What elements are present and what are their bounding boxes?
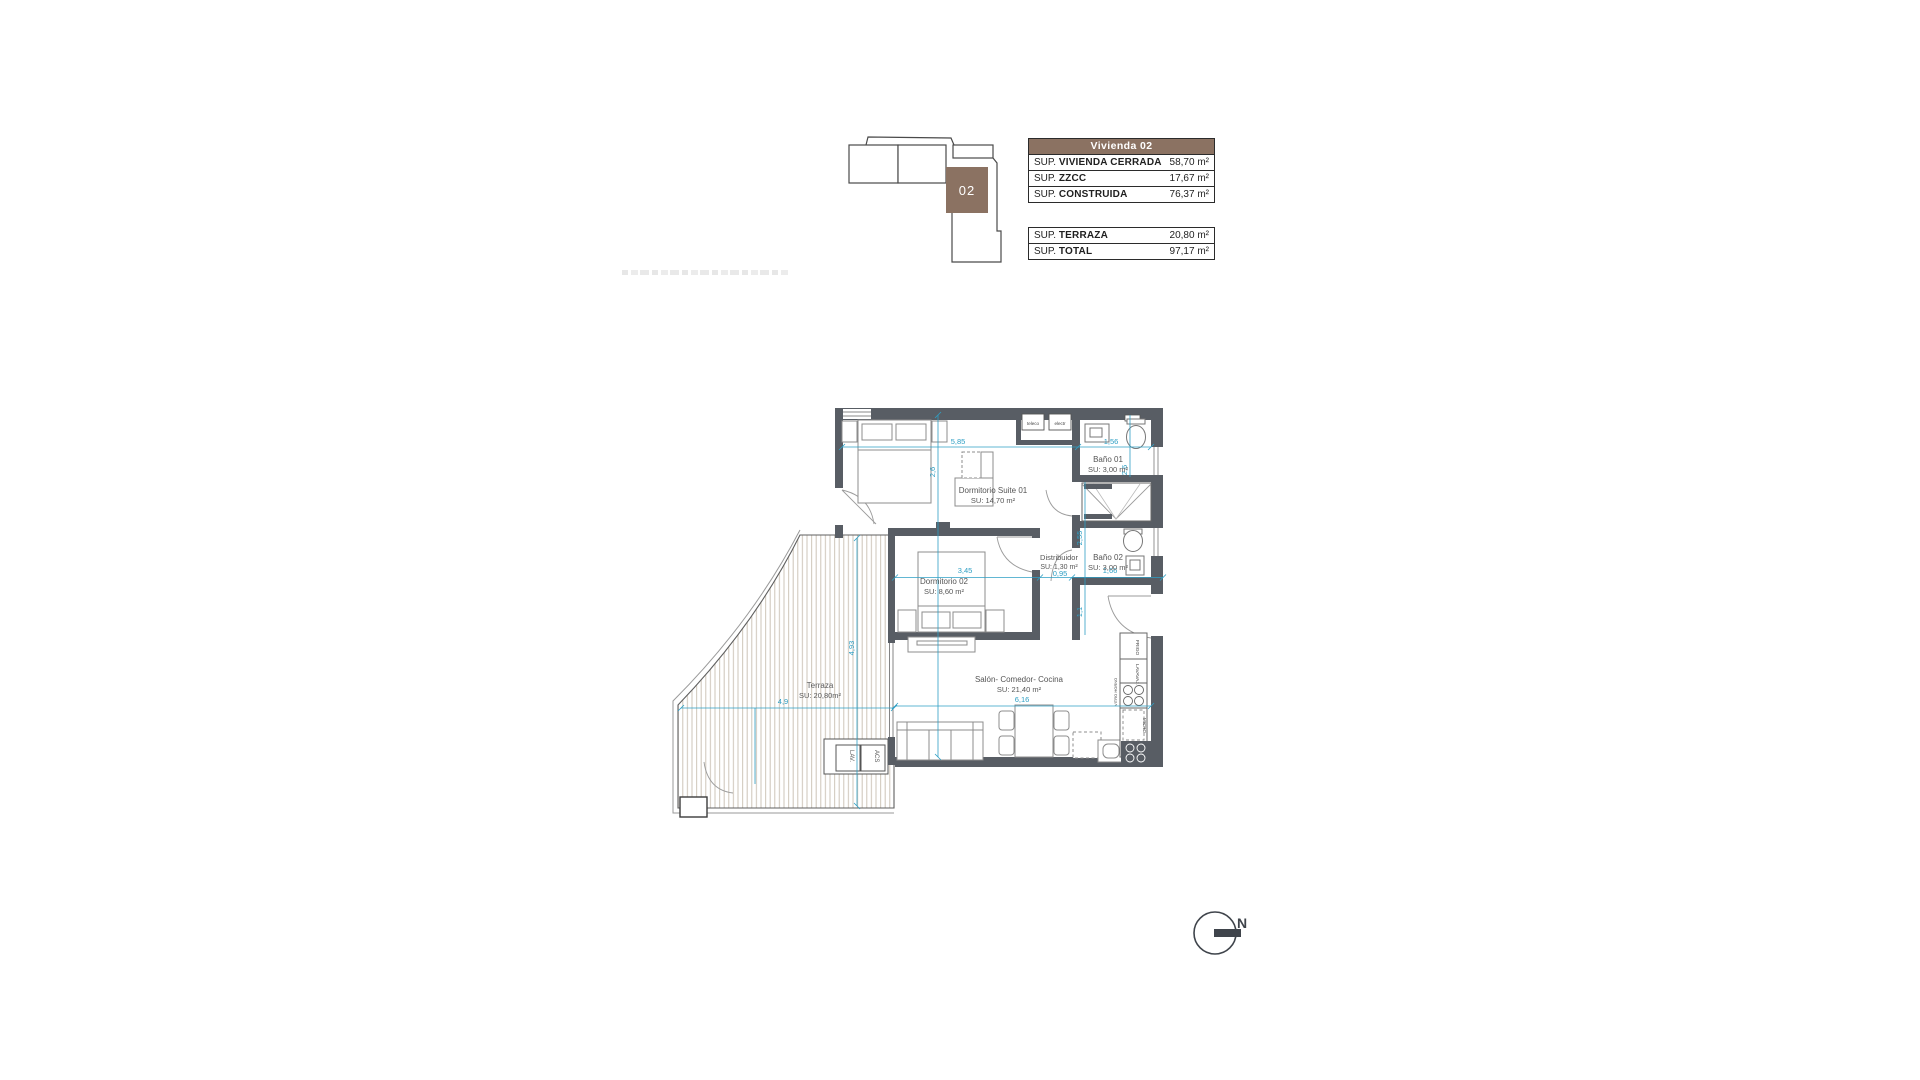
acs-label: ACS bbox=[873, 750, 879, 762]
suite-area: SU: 14,70 m² bbox=[971, 496, 1016, 505]
frigo-label: FRIGO bbox=[1134, 640, 1140, 655]
electr-label: electr bbox=[1054, 421, 1066, 426]
chair bbox=[1054, 711, 1069, 730]
bano1-area: SU: 3,00 m² bbox=[1088, 465, 1129, 474]
salon-area: SU: 21,40 m² bbox=[997, 685, 1042, 694]
key-plan-unit-label: 02 bbox=[959, 183, 975, 198]
dorm2-area: SU: 8,60 m² bbox=[924, 587, 965, 596]
table-row: SUP. CONSTRUIDA 76,37 m² bbox=[1029, 186, 1214, 202]
dim-dorm2-width: 3,45 bbox=[958, 566, 973, 575]
bano2-label: Baño 02 bbox=[1093, 553, 1123, 562]
corner-sink bbox=[1121, 741, 1151, 765]
dim-passage-height: 2,55 bbox=[1075, 531, 1084, 546]
distribuidor-label: Distribuidor bbox=[1040, 553, 1078, 562]
row-label: SUP. ZZCC bbox=[1034, 173, 1086, 184]
micro-label: MICRO bbox=[1142, 718, 1147, 733]
lavavaj-label: LAVAVAJ. bbox=[1134, 664, 1140, 685]
salon-label: Salón- Comedor- Cocina bbox=[975, 675, 1064, 684]
nightstand bbox=[932, 421, 947, 442]
toilet-bano2 bbox=[1124, 531, 1143, 552]
terrace-corner-box bbox=[680, 797, 707, 817]
table-row: SUP. TOTAL 97,17 m² bbox=[1029, 243, 1214, 259]
pillow bbox=[922, 612, 950, 628]
drawing: 02 LAV. ACS Terraza SU: 20,80m² bbox=[0, 0, 1920, 1080]
chair bbox=[1054, 736, 1069, 755]
distribuidor-area: SU: 1,30 m² bbox=[1040, 564, 1078, 571]
bano1-label: Baño 01 bbox=[1093, 455, 1123, 464]
dorm2-door-arc bbox=[997, 537, 1032, 572]
teleco-label: teleco bbox=[1027, 421, 1040, 426]
area-table-main: Vivienda 02 SUP. VIVIENDA CERRADA 58,70 … bbox=[1028, 138, 1215, 203]
dim-terraza-height: 4,93 bbox=[847, 641, 856, 656]
terrace: LAV. ACS Terraza SU: 20,80m² bbox=[673, 530, 894, 817]
terraza-area: SU: 20,80m² bbox=[799, 691, 842, 700]
row-label: SUP. TOTAL bbox=[1034, 246, 1092, 257]
row-value: 58,70 m² bbox=[1170, 157, 1209, 168]
key-plan-canopy bbox=[866, 137, 954, 145]
dim-salon-width: 6,16 bbox=[1015, 695, 1030, 704]
row-value: 76,37 m² bbox=[1170, 189, 1209, 200]
dim-suite-height: 2,6 bbox=[928, 467, 937, 477]
row-label: SUP. CONSTRUIDA bbox=[1034, 189, 1128, 200]
key-plan: 02 bbox=[849, 137, 1001, 262]
row-value: 97,17 m² bbox=[1170, 246, 1209, 257]
table-row: SUP. VIVIENDA CERRADA 58,70 m² bbox=[1029, 155, 1214, 170]
table-row: SUP. TERRAZA 20,80 m² bbox=[1029, 228, 1214, 243]
lav-label: LAV. bbox=[848, 750, 854, 762]
side-unit bbox=[981, 452, 993, 478]
nightstand bbox=[842, 421, 857, 442]
laundry-closet: LAV. ACS bbox=[824, 739, 888, 774]
plan-sheet: 02 LAV. ACS Terraza SU: 20,80m² bbox=[0, 0, 1920, 1080]
bano2-area: SU: 3,00 m² bbox=[1088, 563, 1129, 572]
terraza-label: Terraza bbox=[807, 681, 834, 690]
closet-door-arc bbox=[1046, 490, 1072, 516]
future-unit bbox=[1073, 732, 1101, 758]
pillow bbox=[953, 612, 981, 628]
wardrobe bbox=[1082, 483, 1151, 521]
north-compass: N bbox=[1194, 912, 1247, 954]
toilet-bano1 bbox=[1127, 426, 1146, 449]
nightstand bbox=[898, 610, 916, 632]
vitro-horno-label: VITRO HORNO bbox=[1113, 678, 1118, 706]
salon-furniture bbox=[897, 637, 1124, 762]
key-plan-block bbox=[849, 145, 898, 183]
row-value: 20,80 m² bbox=[1170, 230, 1209, 241]
sofa bbox=[897, 722, 983, 760]
entrance-opening bbox=[1148, 594, 1166, 636]
entrance-door-arc bbox=[1108, 596, 1151, 638]
table-row: SUP. ZZCC 17,67 m² bbox=[1029, 170, 1214, 186]
area-table-secondary: SUP. TERRAZA 20,80 m² SUP. TOTAL 97,17 m… bbox=[1028, 227, 1215, 260]
row-value: 17,67 m² bbox=[1170, 173, 1209, 184]
dim-suite-width: 5,85 bbox=[951, 437, 966, 446]
table-header: Vivienda 02 bbox=[1029, 139, 1214, 155]
key-plan-block bbox=[953, 145, 993, 158]
north-label: N bbox=[1237, 915, 1247, 931]
dim-terraza-width: 4,9 bbox=[778, 697, 788, 706]
fine-print-illegible bbox=[622, 270, 790, 275]
row-label: SUP. TERRAZA bbox=[1034, 230, 1108, 241]
dim-bano1-width: 1,56 bbox=[1104, 437, 1119, 446]
chair bbox=[999, 736, 1014, 755]
dining-table bbox=[1015, 705, 1053, 757]
key-plan-block bbox=[898, 145, 946, 183]
dim-entry-height: 1,1 bbox=[1075, 607, 1084, 617]
pillow bbox=[862, 424, 892, 440]
nightstand bbox=[986, 610, 1004, 632]
chair bbox=[999, 711, 1014, 730]
suite-label: Dormitorio Suite 01 bbox=[959, 486, 1028, 495]
pillow bbox=[896, 424, 926, 440]
row-label: SUP. VIVIENDA CERRADA bbox=[1034, 157, 1162, 168]
dorm2-label: Dormitorio 02 bbox=[920, 577, 969, 586]
